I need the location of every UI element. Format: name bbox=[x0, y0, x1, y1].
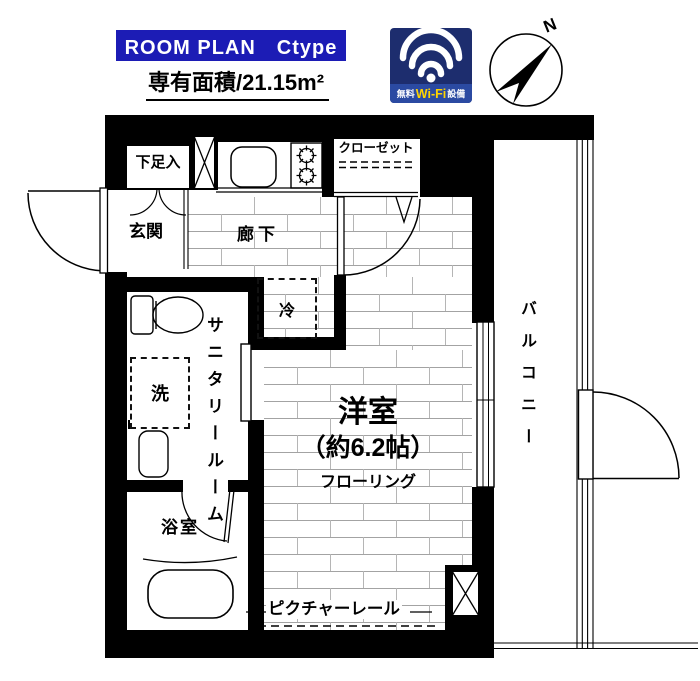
entrance-door bbox=[28, 188, 108, 273]
wifi-badge-text: 無料 Wi-Fi 設備 bbox=[390, 84, 472, 103]
closet-label: クローゼット bbox=[334, 141, 418, 155]
entrance-label: 玄関 bbox=[114, 222, 178, 242]
wall bbox=[127, 480, 183, 492]
wall bbox=[330, 115, 420, 139]
wifi-brand-label: Wi-Fi bbox=[416, 87, 446, 101]
main-room-size-label: （約6.2帖） bbox=[272, 434, 464, 463]
wall bbox=[248, 420, 264, 632]
wall bbox=[105, 272, 127, 658]
wall bbox=[228, 480, 264, 492]
compass-needle bbox=[496, 44, 552, 104]
wall bbox=[214, 115, 334, 142]
balcony-label: バルコニー bbox=[518, 300, 534, 500]
room-plan-banner: ROOM PLAN Ctype bbox=[116, 30, 346, 61]
laundry-label: 洗 bbox=[151, 380, 169, 406]
wall bbox=[105, 277, 264, 292]
compass: N bbox=[486, 18, 576, 114]
bathroom-area bbox=[127, 492, 248, 630]
wall bbox=[472, 140, 494, 323]
main-room-label: 洋室 bbox=[275, 396, 461, 431]
floor-plan-page: ROOM PLAN Ctype 専有面積/21.15m² 無料 Wi-Fi 設備… bbox=[0, 0, 700, 681]
flooring-room-upper bbox=[346, 277, 472, 350]
fridge-space: 冷 bbox=[257, 278, 317, 339]
window bbox=[477, 322, 494, 487]
floor-area-label: 専有面積/21.15m² bbox=[146, 65, 329, 101]
wall bbox=[490, 115, 594, 140]
kitchen-area bbox=[214, 142, 322, 197]
wifi-free-label: 無料 bbox=[397, 87, 415, 100]
hallway-label: 廊下 bbox=[225, 225, 291, 245]
closet-front-line bbox=[334, 193, 418, 197]
shoe-box-label: 下足入 bbox=[127, 154, 189, 171]
wall bbox=[105, 630, 494, 658]
balcony-area bbox=[494, 140, 594, 660]
picture-rail-label: ピクチャーレール bbox=[266, 600, 402, 619]
wifi-badge: 無料 Wi-Fi 設備 bbox=[390, 28, 472, 103]
bathroom-label: 浴室 bbox=[150, 518, 210, 538]
wifi-equip-label: 設備 bbox=[447, 87, 465, 100]
flooring-label: フローリング bbox=[275, 474, 461, 492]
laundry-space: 洗 bbox=[130, 357, 190, 429]
fridge-label: 冷 bbox=[279, 297, 295, 321]
wifi-icon bbox=[390, 28, 472, 84]
